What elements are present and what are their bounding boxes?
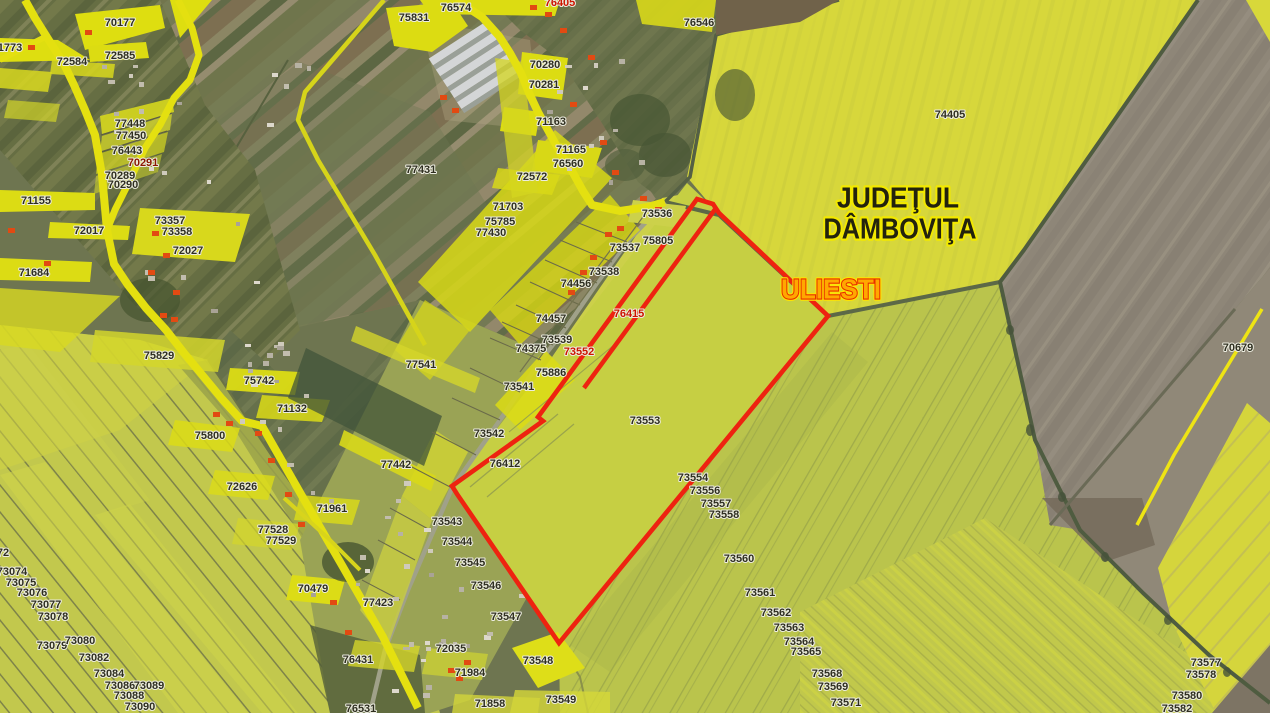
svg-text:73358: 73358	[162, 226, 193, 238]
svg-text:73543: 73543	[432, 516, 463, 528]
svg-text:ULIESTI: ULIESTI	[781, 273, 881, 304]
svg-text:73084: 73084	[94, 668, 125, 680]
svg-text:77431: 77431	[406, 164, 437, 176]
svg-text:75742: 75742	[244, 375, 275, 387]
svg-text:71684: 71684	[19, 267, 50, 279]
svg-text:73541: 73541	[504, 381, 535, 393]
svg-text:70290: 70290	[108, 179, 139, 191]
svg-text:77529: 77529	[266, 535, 297, 547]
svg-text:74405: 74405	[935, 109, 966, 121]
svg-text:73554: 73554	[678, 472, 709, 484]
svg-text:73556: 73556	[690, 485, 721, 497]
svg-text:JUDEŢUL: JUDEŢUL	[837, 183, 959, 215]
svg-text:75800: 75800	[195, 430, 226, 442]
svg-text:71165: 71165	[556, 144, 586, 156]
svg-text:77448: 77448	[115, 118, 146, 130]
svg-text:73560: 73560	[724, 553, 755, 565]
svg-text:73079: 73079	[37, 640, 68, 652]
svg-text:76443: 76443	[112, 145, 143, 157]
svg-text:73536: 73536	[642, 208, 673, 220]
svg-text:73090: 73090	[125, 701, 156, 713]
svg-text:73080: 73080	[65, 635, 96, 647]
svg-text:70281: 70281	[529, 79, 560, 91]
svg-text:73077: 73077	[31, 599, 62, 611]
svg-text:72626: 72626	[227, 481, 258, 493]
svg-text:76546: 76546	[684, 17, 715, 29]
svg-text:73544: 73544	[442, 536, 473, 548]
svg-text:76415: 76415	[614, 308, 645, 320]
svg-text:73571: 73571	[831, 697, 862, 709]
svg-text:70679: 70679	[1223, 342, 1254, 354]
svg-text:77430: 77430	[476, 227, 507, 239]
svg-text:73553: 73553	[630, 415, 661, 427]
svg-text:70291: 70291	[128, 157, 159, 169]
svg-text:77450: 77450	[116, 130, 147, 142]
svg-text:72572: 72572	[517, 171, 548, 183]
svg-text:72017: 72017	[74, 225, 105, 237]
svg-text:72035: 72035	[436, 643, 467, 655]
svg-text:70479: 70479	[298, 583, 329, 595]
svg-text:71984: 71984	[455, 667, 486, 679]
svg-text:73565: 73565	[791, 646, 822, 658]
svg-text:73078: 73078	[38, 611, 69, 623]
svg-text:73549: 73549	[546, 694, 577, 706]
svg-text:70177: 70177	[105, 17, 136, 29]
svg-text:73561: 73561	[745, 587, 776, 599]
svg-text:72584: 72584	[57, 56, 88, 68]
svg-text:71858: 71858	[475, 698, 506, 710]
svg-text:DÂMBOVIŢA: DÂMBOVIŢA	[824, 212, 977, 246]
svg-text:75829: 75829	[144, 350, 175, 362]
svg-text:73563: 73563	[774, 622, 805, 634]
svg-text:72: 72	[0, 547, 9, 559]
svg-text:76560: 76560	[553, 158, 584, 170]
svg-text:74457: 74457	[536, 313, 567, 325]
svg-text:73537: 73537	[610, 242, 641, 254]
svg-text:71163: 71163	[536, 116, 566, 128]
svg-text:73542: 73542	[474, 428, 505, 440]
svg-text:73558: 73558	[709, 509, 740, 521]
svg-text:71961: 71961	[317, 503, 348, 515]
svg-text:73545: 73545	[455, 557, 486, 569]
svg-text:75831: 75831	[399, 12, 430, 24]
svg-text:71703: 71703	[493, 201, 524, 213]
svg-text:77541: 77541	[406, 359, 437, 371]
svg-text:72585: 72585	[105, 50, 136, 62]
svg-text:73538: 73538	[589, 266, 620, 278]
svg-text:1773: 1773	[0, 42, 22, 54]
svg-text:73548: 73548	[523, 655, 554, 667]
svg-text:76412: 76412	[490, 458, 521, 470]
svg-text:73562: 73562	[761, 607, 792, 619]
svg-text:76574: 76574	[441, 2, 472, 14]
svg-text:76531: 76531	[346, 703, 377, 713]
svg-text:76405: 76405	[545, 0, 576, 9]
svg-text:75805: 75805	[643, 235, 674, 247]
svg-text:73552: 73552	[564, 346, 595, 358]
svg-text:74375: 74375	[516, 343, 547, 355]
svg-text:71155: 71155	[21, 195, 51, 207]
svg-text:74456: 74456	[561, 278, 592, 290]
svg-text:73082: 73082	[79, 652, 110, 664]
svg-text:71132: 71132	[277, 403, 307, 415]
svg-text:72027: 72027	[173, 245, 204, 257]
svg-text:70280: 70280	[530, 59, 561, 71]
svg-text:77423: 77423	[363, 597, 394, 609]
svg-text:73582: 73582	[1162, 703, 1193, 713]
svg-text:76431: 76431	[343, 654, 374, 666]
svg-text:73546: 73546	[471, 580, 502, 592]
svg-text:73568: 73568	[812, 668, 843, 680]
svg-text:77442: 77442	[381, 459, 412, 471]
svg-text:73578: 73578	[1186, 669, 1217, 681]
svg-text:75886: 75886	[536, 367, 567, 379]
svg-text:73577: 73577	[1191, 657, 1222, 669]
svg-text:73569: 73569	[818, 681, 849, 693]
svg-text:73076: 73076	[17, 587, 48, 599]
svg-text:73547: 73547	[491, 611, 522, 623]
svg-text:73580: 73580	[1172, 690, 1203, 702]
